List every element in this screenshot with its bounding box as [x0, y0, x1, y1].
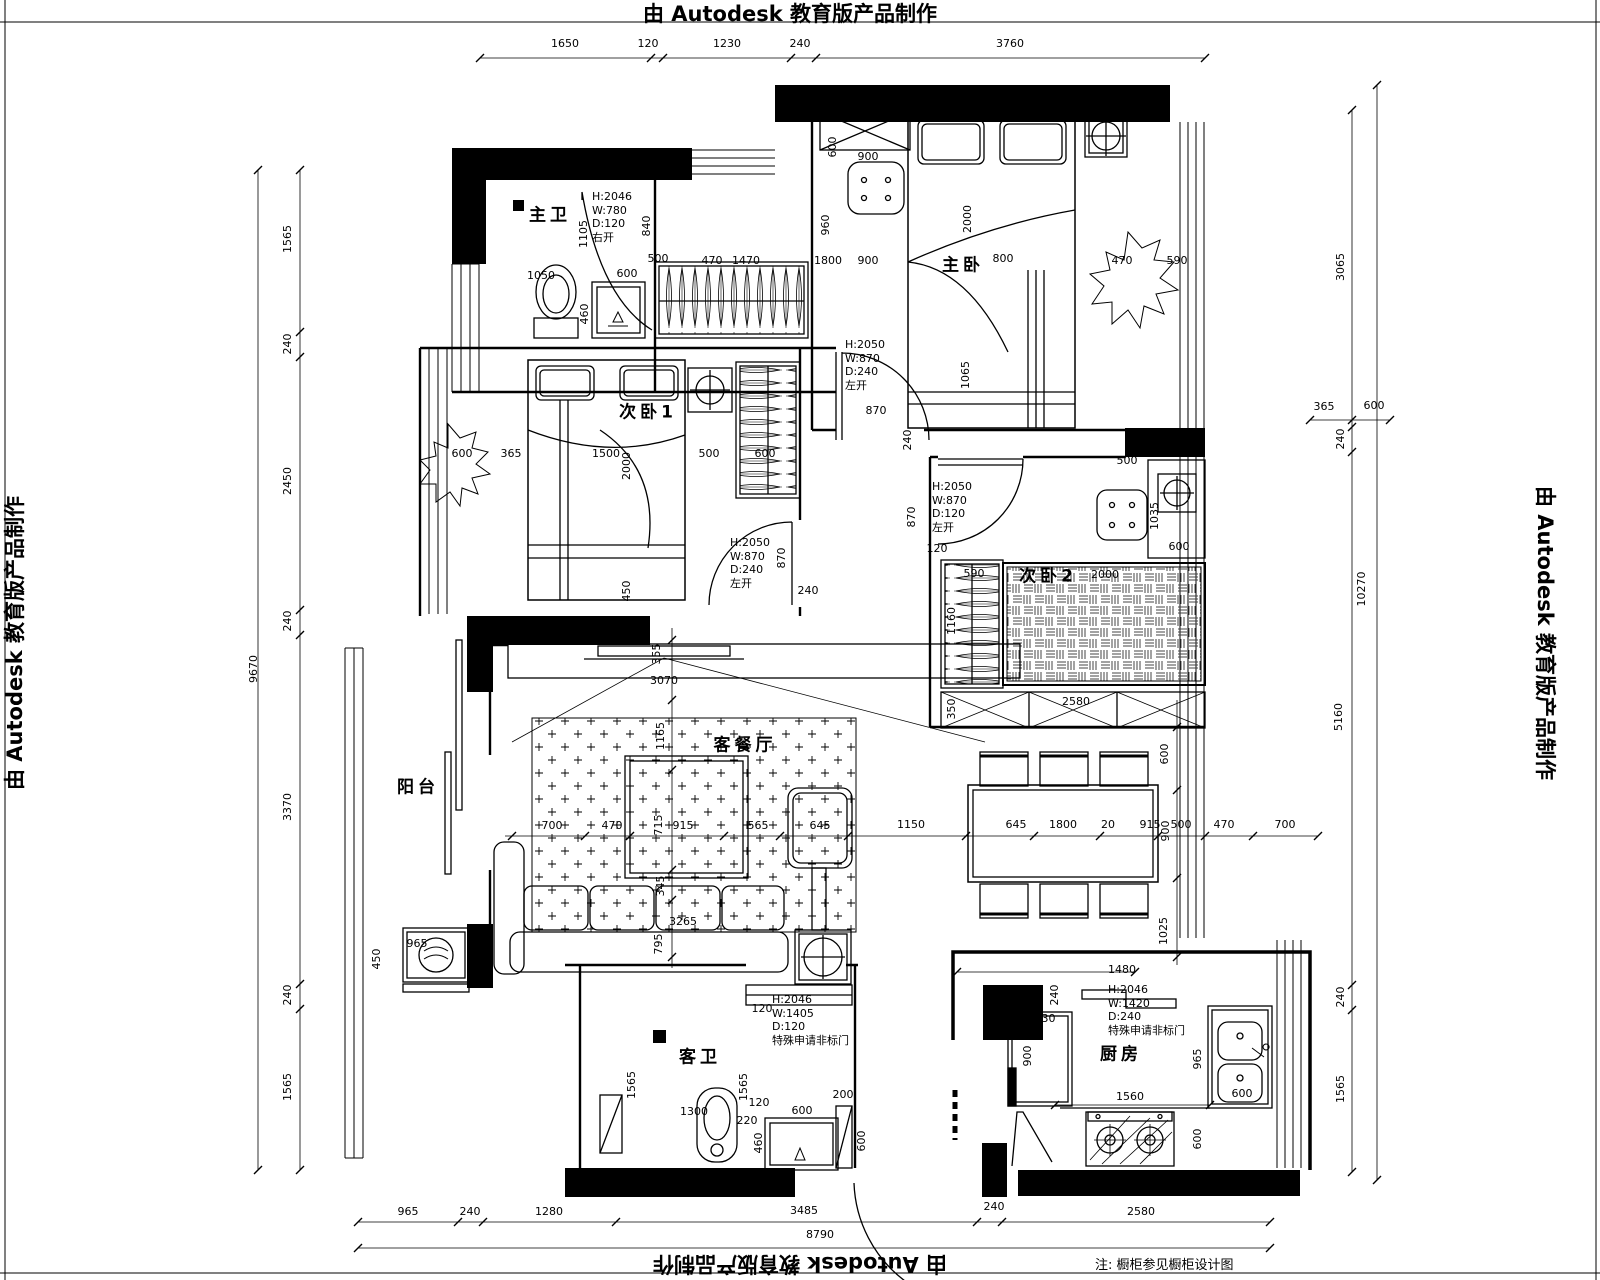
- dimension-label: 870: [844, 405, 908, 417]
- dimension-label: 840: [641, 194, 653, 258]
- room-label: 厨房: [1100, 1040, 1142, 1065]
- room-label: 客卫: [679, 1043, 721, 1068]
- dimension-label: 2000: [1073, 569, 1137, 581]
- door-spec-line: 特殊申请非标门: [1108, 1024, 1185, 1038]
- door-spec-line: 左开: [932, 521, 972, 535]
- watermark-right: 由 Autodesk 教育版产品制作: [1531, 423, 1561, 843]
- dimension-label: 600: [1210, 1088, 1274, 1100]
- door-spec-line: 右开: [592, 231, 632, 245]
- dimension-label: 500: [677, 448, 741, 460]
- dimension-label: 8790: [788, 1229, 852, 1241]
- floorplan-drawing: [0, 0, 1600, 1280]
- door-spec-line: D:240: [845, 365, 885, 379]
- dimension-label: 1565: [626, 1053, 638, 1117]
- room-label: 客餐厅: [714, 731, 777, 756]
- door-spec: H:2046W:1420D:240特殊申请非标门: [1108, 983, 1185, 1037]
- door-spec: H:2050W:870D:240左开: [730, 536, 770, 590]
- door-spec-line: D:240: [730, 563, 770, 577]
- door-spec-line: D:120: [592, 217, 632, 231]
- dimension-label: 700: [520, 820, 584, 832]
- dimension-label: 450: [371, 927, 383, 991]
- dimension-label: 600: [827, 115, 839, 179]
- dimension-label: 345: [655, 854, 667, 918]
- door-spec-line: H:2050: [932, 480, 972, 494]
- dimension-label: 1165: [655, 704, 667, 768]
- room-label: 次卧2: [1019, 562, 1077, 587]
- dimension-label: 600: [1147, 541, 1211, 553]
- dimension-label: 460: [753, 1111, 765, 1175]
- dimension-label: 1565: [282, 1055, 294, 1119]
- dimension-label: 240: [1335, 965, 1347, 1029]
- dimension-label: 900: [1022, 1024, 1034, 1088]
- cabinet-note: 注: 橱柜参见橱柜设计图: [1095, 1254, 1234, 1273]
- dimension-label: 900: [1160, 799, 1172, 863]
- dimension-label: 3760: [978, 38, 1042, 50]
- door-spec-line: 左开: [730, 577, 770, 591]
- dimension-label: 1560: [1098, 1091, 1162, 1103]
- dimension-label: 240: [962, 1201, 1026, 1213]
- door-spec-line: D:120: [772, 1020, 849, 1034]
- dimension-label: 1650: [533, 38, 597, 50]
- dimension-label: 1480: [1090, 964, 1154, 976]
- dimension-label: 1565: [738, 1055, 750, 1119]
- dimension-label: 240: [776, 585, 840, 597]
- dimension-label: 600: [770, 1105, 834, 1117]
- dimension-label: 2450: [282, 449, 294, 513]
- dimension-label: 120: [905, 543, 969, 555]
- dimension-label: 350: [946, 677, 958, 741]
- dimension-label: 600: [595, 268, 659, 280]
- door-spec-line: H:2050: [845, 338, 885, 352]
- door-spec-line: W:870: [845, 352, 885, 366]
- dimension-label: 590: [942, 568, 1006, 580]
- dimension-label: 1150: [879, 819, 943, 831]
- dimension-label: 700: [1253, 819, 1317, 831]
- door-spec-line: H:2046: [772, 993, 849, 1007]
- dimension-label: 355: [651, 622, 663, 686]
- dimension-label: 600: [733, 448, 797, 460]
- room-label: 阳台: [397, 773, 439, 798]
- dimension-label: 565: [726, 820, 790, 832]
- door-spec-line: W:1420: [1108, 997, 1185, 1011]
- dimension-label: 240: [768, 38, 832, 50]
- dimension-label: 3065: [1335, 235, 1347, 299]
- dimension-label: 240: [282, 963, 294, 1027]
- room-label: 主卫: [529, 201, 571, 226]
- dimension-label: 965: [1192, 1027, 1204, 1091]
- dimension-label: 2580: [1044, 696, 1108, 708]
- dimension-label: 870: [776, 526, 788, 590]
- dimension-label: 1025: [1158, 899, 1170, 963]
- watermark-bottom: 由 Autodesk 教育版产品制作: [590, 1250, 1010, 1280]
- door-spec-line: W:780: [592, 204, 632, 218]
- door-spec: H:2046W:1405D:120特殊申请非标门: [772, 993, 849, 1047]
- dimension-label: 1280: [517, 1206, 581, 1218]
- door-spec-line: H:2046: [592, 190, 632, 204]
- dimension-label: 3265: [651, 916, 715, 928]
- door-spec-line: 左开: [845, 379, 885, 393]
- dimension-label: 240: [282, 589, 294, 653]
- dimension-label: 590: [1145, 255, 1209, 267]
- door-spec-line: 特殊申请非标门: [772, 1034, 849, 1048]
- dimension-label: 9670: [248, 637, 260, 701]
- door-spec-line: D:240: [1108, 1010, 1185, 1024]
- dimension-label: 3370: [282, 775, 294, 839]
- dimension-label: 600: [1159, 722, 1171, 786]
- dimension-label: 2000: [621, 434, 633, 498]
- dimension-label: 1160: [946, 589, 958, 653]
- dimension-label: 870: [906, 485, 918, 549]
- dimension-label: 3485: [772, 1205, 836, 1217]
- dimension-label: 600: [1192, 1107, 1204, 1171]
- dimension-label: 2000: [962, 187, 974, 251]
- floor-plan-page: 由 Autodesk 教育版产品制作 由 Autodesk 教育版产品制作 由 …: [0, 0, 1600, 1280]
- dimension-label: 240: [902, 408, 914, 472]
- door-spec-line: W:1405: [772, 1007, 849, 1021]
- room-label: 次卧1: [619, 398, 677, 423]
- dimension-label: 365: [479, 448, 543, 460]
- door-spec-line: H:2046: [1108, 983, 1185, 997]
- door-spec: H:2050W:870D:240左开: [845, 338, 885, 392]
- dimension-label: 915: [651, 820, 715, 832]
- dimension-label: 1050: [509, 270, 573, 282]
- dimension-label: 900: [836, 255, 900, 267]
- watermark-left: 由 Autodesk 教育版产品制作: [0, 433, 29, 853]
- dimension-label: 470: [1192, 819, 1256, 831]
- dimension-label: 600: [856, 1109, 868, 1173]
- dimension-label: 1565: [1335, 1057, 1347, 1121]
- dimension-label: 960: [820, 193, 832, 257]
- dimension-label: 10270: [1356, 557, 1368, 621]
- dimension-label: 1470: [714, 255, 778, 267]
- dimension-label: 470: [580, 820, 644, 832]
- dimension-label: 800: [971, 253, 1035, 265]
- door-spec: H:2050W:870D:120左开: [932, 480, 972, 534]
- dimension-label: 1065: [960, 343, 972, 407]
- door-spec-line: H:2050: [730, 536, 770, 550]
- dimension-label: 965: [385, 938, 449, 950]
- dimension-label: 1035: [1149, 484, 1161, 548]
- dimension-label: 1230: [695, 38, 759, 50]
- dimension-label: 3070: [632, 675, 696, 687]
- door-spec: H:2046W:780D:120右开: [592, 190, 632, 244]
- dimension-label: 1565: [282, 207, 294, 271]
- dimension-label: 600: [1342, 400, 1406, 412]
- dimension-label: 450: [621, 559, 633, 623]
- dimension-label: 500: [1095, 455, 1159, 467]
- door-spec-line: D:120: [932, 507, 972, 521]
- dimension-label: 1105: [578, 202, 590, 266]
- dimension-label: 900: [836, 151, 900, 163]
- dimension-label: 965: [376, 1206, 440, 1218]
- dimension-label: 120: [616, 38, 680, 50]
- dimension-label: 200: [811, 1089, 875, 1101]
- dimension-label: 240: [438, 1206, 502, 1218]
- door-spec-line: W:870: [932, 494, 972, 508]
- dimension-label: 460: [579, 282, 591, 346]
- door-spec-line: W:870: [730, 550, 770, 564]
- dimension-label: 5160: [1333, 685, 1345, 749]
- dimension-label: 240: [282, 312, 294, 376]
- dimension-label: 240: [1335, 407, 1347, 471]
- dimension-label: 645: [788, 820, 852, 832]
- dimension-label: 2580: [1109, 1206, 1173, 1218]
- watermark-top: 由 Autodesk 教育版产品制作: [580, 0, 1000, 28]
